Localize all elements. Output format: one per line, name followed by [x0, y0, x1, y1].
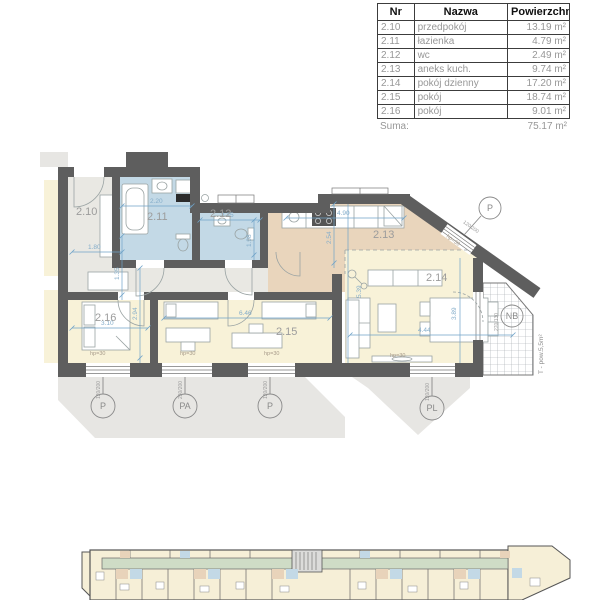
dim-bath-w: 2.20 — [150, 198, 163, 205]
room-label-212: 2.12 — [210, 208, 231, 220]
cell-pow: 18.74 m² — [508, 91, 570, 105]
cell-nazwa: wc — [414, 49, 507, 63]
window-214 — [410, 363, 455, 377]
hp-label: hp=30 — [180, 351, 195, 357]
overview-stair-core — [292, 550, 322, 572]
cell-nr: 2.11 — [378, 35, 415, 49]
table-row: 2.11 łazienka 4.79 m² — [378, 35, 570, 49]
room-label-215: 2.15 — [276, 326, 297, 338]
cell-pow: 2.49 m² — [508, 49, 570, 63]
coffee-table — [378, 304, 396, 332]
washbasin — [152, 179, 172, 193]
window-marker-label: P — [100, 401, 106, 411]
dim-living-w: 4.44 — [418, 327, 431, 334]
table-row: 2.10 przedpokój 13.19 m² — [378, 21, 570, 35]
room-label-216: 2.16 — [95, 312, 116, 324]
cell-nr: 2.13 — [378, 63, 415, 77]
room-area-table: Nr Nazwa Powierzchnia 2.10 przedpokój 13… — [377, 3, 570, 119]
room-label-211: 2.11 — [147, 211, 168, 223]
window-marker-size: 120/200 — [96, 381, 102, 399]
dim-room15-w: 6.46 — [239, 310, 252, 317]
window-marker-label: P — [487, 203, 493, 213]
bathtub — [122, 184, 148, 234]
terrace-label: T - pow.5,5m² — [538, 334, 545, 374]
header-powierzchnia: Powierzchnia — [508, 4, 570, 21]
washer-dark — [176, 194, 190, 202]
dim-hall-h: 1.35 — [114, 267, 121, 280]
cell-pow: 17.20 m² — [508, 77, 570, 91]
overview-plan — [60, 538, 590, 600]
dim-living-h2: 3.89 — [451, 307, 458, 320]
cell-nr: 2.16 — [378, 105, 415, 119]
cell-nazwa: aneks kuch. — [414, 63, 507, 77]
window-marker-size: 120/200 — [263, 381, 269, 399]
overview-building — [82, 546, 570, 600]
table-row: 2.14 pokój dzienny 17.20 m² — [378, 77, 570, 91]
cell-nazwa: pokój dzienny — [414, 77, 507, 91]
area-table: Nr Nazwa Powierzchnia 2.10 przedpokój 13… — [377, 3, 570, 132]
window-marker-label: NB — [506, 311, 519, 321]
bed-215-left — [164, 302, 218, 319]
window-wc-high — [218, 195, 254, 203]
window-215-left — [162, 363, 212, 377]
table-row: 2.13 aneks kuch. 9.74 m² — [378, 63, 570, 77]
cell-pow: 9.01 m² — [508, 105, 570, 119]
window-marker-label: PA — [179, 401, 190, 411]
cell-pow: 4.79 m² — [508, 35, 570, 49]
window-marker-size: 230/200 — [178, 381, 184, 399]
window-216 — [86, 363, 130, 377]
cell-nr: 2.12 — [378, 49, 415, 63]
table-row: 2.16 pokój 9.01 m² — [378, 105, 570, 119]
dim-room16-h: 2.94 — [132, 307, 139, 320]
cell-nazwa: przedpokój — [414, 21, 507, 35]
window-marker-label: PL — [426, 403, 437, 413]
suma-label: Suma: — [380, 121, 409, 132]
cell-nazwa: pokój — [414, 105, 507, 119]
cell-pow: 9.74 m² — [508, 63, 570, 77]
window-marker-size: 120/200 — [425, 383, 431, 401]
cell-nr: 2.15 — [378, 91, 415, 105]
hp-label: hp=30 — [390, 353, 405, 359]
dim-wc-h: 1.98 — [246, 234, 253, 247]
dim-hall-w: 1.80 — [88, 244, 101, 251]
cell-nr: 2.10 — [378, 21, 415, 35]
window-kitchen-high — [332, 188, 388, 194]
room-label-213: 2.13 — [373, 229, 394, 241]
washer — [176, 180, 192, 193]
bed-215-right — [262, 302, 316, 319]
table-row: 2.15 pokój 18.74 m² — [378, 91, 570, 105]
suma-value: 75.17 m² — [528, 121, 567, 132]
dim-living-h1: 5.39 — [356, 285, 363, 298]
window-marker-size: 270/130 — [494, 313, 500, 331]
hp-label: hp=30 — [264, 351, 279, 357]
dim-kitchen-h: 2.54 — [326, 231, 333, 244]
window-215-right — [248, 363, 295, 377]
fan-symbol — [202, 195, 209, 202]
room-label-210: 2.10 — [76, 206, 97, 218]
cell-nr: 2.14 — [378, 77, 415, 91]
hp-label: hp=30 — [90, 351, 105, 357]
table-row: 2.12 wc 2.49 m² — [378, 49, 570, 63]
dining-table — [420, 298, 498, 342]
header-nr: Nr — [378, 4, 415, 21]
window-marker-label: P — [267, 401, 273, 411]
floor-plan: 1.80 1.35 2.20 2.25 1.98 4.90 2.54 4.44 … — [0, 140, 600, 460]
cell-nazwa: pokój — [414, 91, 507, 105]
cell-pow: 13.19 m² — [508, 21, 570, 35]
window-marker-size: 120/200 — [462, 219, 480, 235]
suma-row: Suma: 75.17 m² — [377, 119, 570, 132]
cell-nazwa: łazienka — [414, 35, 507, 49]
room-label-214: 2.14 — [426, 272, 447, 284]
dim-kitchen-w: 4.90 — [337, 210, 350, 217]
header-nazwa: Nazwa — [414, 4, 507, 21]
